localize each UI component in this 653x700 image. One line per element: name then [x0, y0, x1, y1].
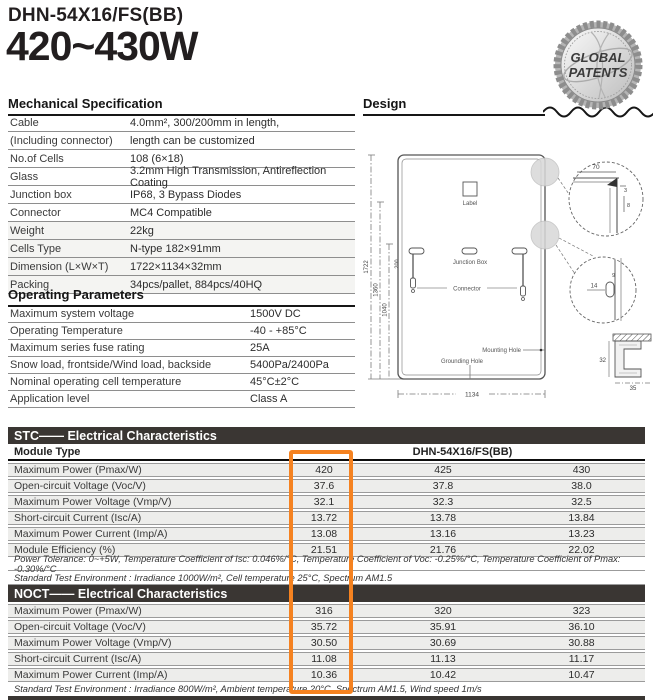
- design-title: Design: [363, 96, 545, 116]
- operating-params-title: Operating Parameters: [8, 287, 355, 307]
- cell-value: 13.78: [368, 512, 518, 524]
- spec-value: MC4 Compatible: [130, 207, 355, 219]
- module-type-label: Module Type: [8, 446, 280, 458]
- spec-value: 22kg: [130, 225, 355, 237]
- badge-text-global: GLOBAL: [571, 50, 626, 65]
- spec-value: 108 (6×18): [130, 153, 355, 165]
- cell-value: 320: [368, 605, 518, 617]
- spec-value: 5400Pa/2400Pa: [250, 359, 355, 371]
- dim-corner-8: 8: [627, 203, 630, 209]
- dim-hole-9: 9: [612, 273, 615, 279]
- cell-value: 13.16: [368, 528, 518, 540]
- table-row: Open-circuit Voltage (Voc/V)37.637.838.0: [8, 479, 645, 493]
- table-row: Short-circuit Current (Isc/A)11.0811.131…: [8, 652, 645, 666]
- cell-value: 10.42: [368, 669, 518, 681]
- table-row: Glass3.2mm High Transmission, Antireflec…: [8, 168, 355, 186]
- cell-value: 11.08: [280, 653, 368, 665]
- table-row: Maximum series fuse rating25A: [8, 340, 355, 357]
- dim-1040: 1040: [383, 303, 389, 317]
- table-row: (Including connector)length can be custo…: [8, 132, 355, 150]
- spec-label: Operating Temperature: [8, 325, 250, 337]
- spec-label: Snow load, frontside/Wind load, backside: [8, 359, 250, 371]
- cell-value: 11.13: [368, 653, 518, 665]
- dim-1360: 1360: [374, 283, 380, 297]
- table-row: Cells TypeN-type 182×91mm: [8, 240, 355, 258]
- mechanical-spec-title: Mechanical Specification: [8, 96, 355, 116]
- mechanical-spec-table: Cable4.0mm², 300/200mm in length, (Inclu…: [8, 114, 355, 294]
- mounting-hole-label: Mounting Hole: [482, 348, 521, 354]
- mounting-slot: [606, 282, 614, 297]
- spec-value: 4.0mm², 300/200mm in length,: [130, 117, 355, 129]
- cell-value: 10.47: [518, 669, 645, 681]
- cell-value: 30.50: [280, 637, 368, 649]
- highlight-corner-circle: [531, 158, 559, 186]
- stc-section-bar: STC—— Electrical Characteristics: [8, 427, 645, 444]
- table-row: Maximum Power Voltage (Vmp/V)32.132.332.…: [8, 495, 645, 509]
- cell-value: 430: [518, 464, 645, 476]
- row-label: Maximum Power (Pmax/W): [8, 605, 280, 617]
- cell-value: 37.8: [368, 480, 518, 492]
- cell-value: 13.72: [280, 512, 368, 524]
- junction-box-label: Junction Box: [453, 260, 487, 266]
- corner-detail-circle: [569, 162, 643, 236]
- table-row: Maximum system voltage1500V DC: [8, 306, 355, 323]
- table-row: Nominal operating cell temperature45°C±2…: [8, 374, 355, 391]
- dim-hole-14: 14: [591, 284, 598, 290]
- spec-value: 1722×1134×32mm: [130, 261, 355, 273]
- junction-box-center: [462, 248, 477, 254]
- spec-label: Nominal operating cell temperature: [8, 376, 250, 388]
- spec-label: Connector: [8, 207, 130, 219]
- cell-value: 323: [518, 605, 645, 617]
- cell-value: 11.17: [518, 653, 645, 665]
- table-row: Maximum Power (Pmax/W)316320323: [8, 604, 645, 618]
- noct-footnote-environment: Standard Test Environment : Irradiance 8…: [8, 682, 645, 695]
- cell-value: 425: [368, 464, 518, 476]
- datasheet-page: DHN-54X16/FS(BB) 420~430W GLOBAL PATENTS…: [0, 0, 653, 700]
- table-row: Operating Temperature-40 - +85°C: [8, 323, 355, 340]
- spec-label: Weight: [8, 225, 130, 237]
- table-row: Maximum Power Current (Imp/A)10.3610.421…: [8, 668, 645, 682]
- spec-value: 3.2mm High Transmission, Antireflection …: [130, 165, 355, 189]
- cell-value: 38.0: [518, 480, 645, 492]
- dim-frame-35: 35: [630, 386, 637, 392]
- connector-label: Connector: [453, 287, 481, 293]
- table-row: Cable4.0mm², 300/200mm in length,: [8, 114, 355, 132]
- table-row: ConnectorMC4 Compatible: [8, 204, 355, 222]
- spec-label: Maximum system voltage: [8, 308, 250, 320]
- spec-label: Maximum series fuse rating: [8, 342, 250, 354]
- cell-value: 30.88: [518, 637, 645, 649]
- cell-value: 35.91: [368, 621, 518, 633]
- cell-value: 10.36: [280, 669, 368, 681]
- operating-params-table: Maximum system voltage1500V DC Operating…: [8, 306, 355, 408]
- frame-profile: [615, 341, 641, 377]
- cell-value: 13.23: [518, 528, 645, 540]
- electrical-section: STC—— Electrical Characteristics Module …: [8, 427, 645, 695]
- stc-footnote-tolerance: Power Tolerance: 0~+5W, Temperature Coef…: [8, 557, 645, 571]
- module-type-row: Module Type DHN-54X16/FS(BB): [8, 444, 645, 461]
- global-patents-badge: GLOBAL PATENTS: [551, 20, 645, 112]
- badge-text-patents: PATENTS: [569, 65, 628, 80]
- spec-label: Application level: [8, 393, 250, 405]
- table-row: Open-circuit Voltage (Voc/V)35.7235.9136…: [8, 620, 645, 634]
- spec-label: Glass: [8, 171, 130, 183]
- dim-corner-3: 3: [624, 188, 627, 194]
- module-type-value: DHN-54X16/FS(BB): [280, 446, 645, 458]
- table-row: Maximum Power Current (Imp/A)13.0813.161…: [8, 527, 645, 541]
- cell-value: 13.84: [518, 512, 645, 524]
- row-label: Short-circuit Current (Isc/A): [8, 653, 280, 665]
- power-range: 420~430W: [6, 23, 197, 70]
- dim-corner-width: 70: [592, 164, 600, 171]
- spec-value: 25A: [250, 342, 355, 354]
- table-row: Application levelClass A: [8, 391, 355, 408]
- spec-label: Junction box: [8, 189, 130, 201]
- row-label: Maximum Power Voltage (Vmp/V): [8, 496, 280, 508]
- spec-label: Cells Type: [8, 243, 130, 255]
- dim-frame-32: 32: [599, 358, 606, 364]
- row-label: Open-circuit Voltage (Voc/V): [8, 621, 280, 633]
- spec-value: IP68, 3 Bypass Diodes: [130, 189, 355, 201]
- cell-value: 35.72: [280, 621, 368, 633]
- cell-value: 32.5: [518, 496, 645, 508]
- spec-value: 45°C±2°C: [250, 376, 355, 388]
- row-label: Maximum Power (Pmax/W): [8, 464, 280, 476]
- cell-value: 316: [280, 605, 368, 617]
- cell-value: 32.3: [368, 496, 518, 508]
- table-row: Junction boxIP68, 3 Bypass Diodes: [8, 186, 355, 204]
- spec-value: 1500V DC: [250, 308, 355, 320]
- table-row: Short-circuit Current (Isc/A)13.7213.781…: [8, 511, 645, 525]
- spec-label: Dimension (L×W×T): [8, 261, 130, 273]
- table-row: Maximum Power Voltage (Vmp/V)30.5030.693…: [8, 636, 645, 650]
- row-label: Maximum Power Current (Imp/A): [8, 528, 280, 540]
- table-row: Dimension (L×W×T)1722×1134×32mm: [8, 258, 355, 276]
- table-row: Maximum Power (Pmax/W)420425430: [8, 463, 645, 477]
- cell-value: 37.6: [280, 480, 368, 492]
- junction-box-right: [512, 248, 527, 254]
- spec-label: (Including connector): [8, 135, 130, 147]
- spec-label: No.of Cells: [8, 153, 130, 165]
- panel-design-diagram: 1722 1360 1040 200 160 1134 Label Juncti…: [363, 128, 653, 414]
- spec-value: Class A: [250, 393, 355, 405]
- highlight-hole-circle: [531, 221, 559, 249]
- cell-value: 32.1: [280, 496, 368, 508]
- row-label: Short-circuit Current (Isc/A): [8, 512, 280, 524]
- badge-seal-icon: GLOBAL PATENTS: [551, 20, 645, 112]
- dim-width: 1134: [465, 392, 479, 399]
- grounding-hole-label: Grounding Hole: [441, 359, 484, 365]
- spec-value: -40 - +85°C: [250, 325, 355, 337]
- noct-section-bar: NOCT—— Electrical Characteristics: [8, 585, 645, 602]
- panel-label-text: Label: [463, 201, 478, 207]
- row-label: Maximum Power Current (Imp/A): [8, 669, 280, 681]
- spec-value: N-type 182×91mm: [130, 243, 355, 255]
- spec-label: Cable: [8, 117, 130, 129]
- row-label: Maximum Power Voltage (Vmp/V): [8, 637, 280, 649]
- junction-box-left: [409, 248, 424, 254]
- cell-value: 13.08: [280, 528, 368, 540]
- cell-value: 36.10: [518, 621, 645, 633]
- spec-value: length can be customized: [130, 135, 355, 147]
- glass-section: [613, 334, 651, 341]
- bottom-rule: [8, 696, 645, 700]
- cell-value: 30.69: [368, 637, 518, 649]
- cell-value: 420: [280, 464, 368, 476]
- table-row: Snow load, frontside/Wind load, backside…: [8, 357, 355, 374]
- dim-total-height: 1722: [364, 260, 370, 274]
- table-row: Weight22kg: [8, 222, 355, 240]
- row-label: Open-circuit Voltage (Voc/V): [8, 480, 280, 492]
